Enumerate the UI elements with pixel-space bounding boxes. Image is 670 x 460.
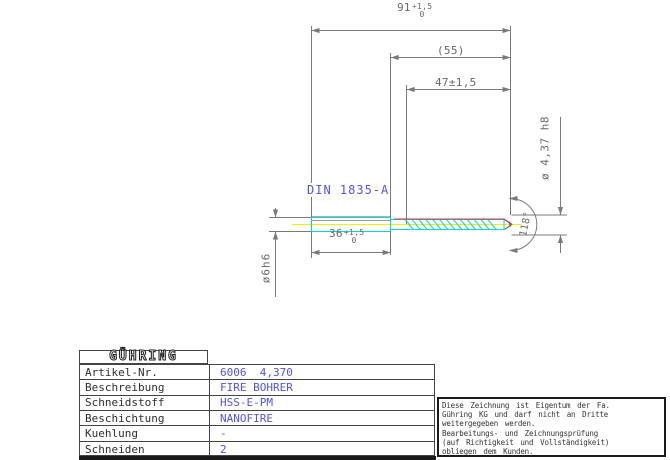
drawing-sheet: 91+1,50 (55) 47±1,5 36+1,50 ø6h6 ø 4,37 … [0,0,670,460]
dimension-lines [269,26,567,297]
row-value: 2 [209,443,227,456]
table-column-divider [209,365,210,455]
disclaimer-line: Gühring KG und darf nicht an Dritte [442,410,661,419]
row-value: 6006 4,370 [209,366,293,379]
row-value: - [209,427,227,440]
dim-shank-length-tolerance: +1,50 [344,229,364,244]
dim-shank-diameter: ø6h6 [260,253,273,284]
table-row: Beschichtung NANOFIRE [80,411,434,426]
dim-ref-length: (55) [437,44,465,57]
disclaimer-line: obliegen dem Kunden. [442,447,661,456]
disclaimer-line: Bearbeitungs- und Zeichnungsprüfung [442,429,661,438]
row-label: Kuehlung [80,427,209,440]
tol-lower: 0 [420,11,425,19]
table-bottom-bar [79,456,436,460]
row-value: FIRE BOHRER [209,381,293,394]
row-label: Beschreibung [80,381,209,394]
row-value: HSS-E-PM [209,396,273,409]
row-label: Schneidstoff [80,396,209,409]
table-row: Artikel-Nr. 6006 4,370 [80,365,434,380]
din-standard-label: DIN 1835-A [306,183,390,197]
manufacturer-logo: GÜHRING [109,351,178,363]
table-row: Kuehlung - [80,426,434,441]
manufacturer-logo-box: GÜHRING [79,350,208,364]
dimension-arrowheads [273,28,563,255]
dim-shank-length-value: 36 [329,227,343,240]
disclaimer-line: weitergegeben werden. [442,419,661,428]
dim-shank-length: 36+1,50 [329,227,364,244]
title-block-table: Artikel-Nr. 6006 4,370 Beschreibung FIRE… [79,364,435,456]
row-label: Beschichtung [80,412,209,425]
dim-total-length-tolerance: +1,50 [412,3,432,18]
row-value: NANOFIRE [209,412,273,425]
tol-lower: 0 [352,237,357,245]
disclaimer-line: (auf Richtigkeit und Vollständigkeit) [442,438,661,447]
disclaimer-line: Diese Zeichnung ist Eigentum der Fa. [442,401,661,410]
ownership-disclaimer: Diese Zeichnung ist Eigentum der Fa. Güh… [437,397,666,457]
table-row: Schneidstoff HSS-E-PM [80,396,434,411]
row-label: Schneiden [80,443,209,456]
table-row: Schneiden 2 [80,442,434,457]
dim-flute-length: 47±1,5 [435,76,477,89]
dim-total-length-value: 91 [397,1,411,14]
table-row: Beschreibung FIRE BOHRER [80,380,434,395]
row-label: Artikel-Nr. [80,366,209,379]
dim-cutting-diameter: ø 4,37 h8 [539,116,552,180]
drill-body [292,217,521,232]
drill-point-edge-red [505,219,512,224]
dim-total-length: 91+1,50 [397,1,432,18]
